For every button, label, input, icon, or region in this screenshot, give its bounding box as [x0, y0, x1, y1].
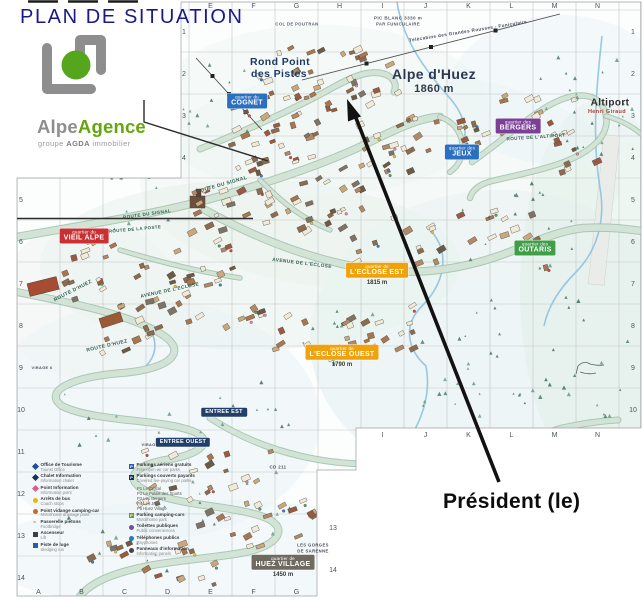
grid-letter-bottom: B [79, 589, 84, 596]
grid-number-right: 2 [631, 71, 635, 78]
parking-icon: P [129, 475, 134, 480]
legend-item: PParking camping-carsMotorhome park [129, 513, 215, 522]
district-label-vieil-alpe: quartier duVIEIL ALPE [60, 229, 109, 244]
grid-letter-top: J [424, 3, 428, 10]
label-altiport: Altiport [591, 98, 630, 109]
grid-number-left: 10 [17, 407, 25, 414]
grid-letter-top: H [337, 3, 342, 10]
circle-icon [33, 498, 38, 503]
grid-letter-bottom: D [165, 589, 170, 596]
grid-number-right: 9 [631, 365, 635, 372]
parking-icon: P [129, 464, 134, 469]
label-col-poutran: COL DE POUTRAN [275, 22, 318, 27]
grid-number-right: 4 [631, 155, 635, 162]
label-cd211: CD 211 [269, 465, 286, 470]
grid-letter-top: G [294, 3, 299, 10]
plan-de-situation-page: { "page": { "title": "PLAN DE SITUATION"… [0, 0, 644, 600]
diamond-icon [32, 485, 39, 492]
grid-number-left: 14 [17, 575, 25, 582]
legend-item: Arrêts de busCoach stops [33, 497, 119, 506]
grid-number-left: 8 [19, 323, 23, 330]
grid-number-left: 6 [19, 239, 23, 246]
legend-parking-list: P1 Le CristalP2 Le Palais des SportsP3 L… [137, 486, 215, 511]
grid-letter-bottom-right: I [382, 432, 384, 439]
legend-item: Panneaux d'informationInformation panels [129, 547, 215, 556]
grid-letter-top: N [595, 3, 600, 10]
label-virage-6: VIRAGE 6 [32, 366, 53, 370]
label-altiport-sub: Henri Giraud [588, 109, 626, 115]
agency-name-alpe: Alpe [37, 116, 78, 137]
label-gorges-1: LES GORGES [297, 543, 329, 548]
grid-number-inner: 14 [329, 567, 337, 574]
grid-number-right: 7 [631, 281, 635, 288]
grid-number-right: 10 [629, 407, 637, 414]
district-label-entree-ouest: ENTREE OUEST [156, 438, 210, 447]
legend-item: Point vidange camping-carMotorhome drain… [33, 509, 119, 518]
grid-letter-top: F [251, 3, 255, 10]
grid-letter-bottom: A [36, 589, 41, 596]
agency-tagline: groupe AGDA immobilier [38, 139, 183, 148]
grid-number-left: 9 [19, 365, 23, 372]
district-label-entree-est: ENTREE EST [201, 408, 247, 417]
grid-number-left: 13 [17, 533, 25, 540]
circle-icon [129, 548, 134, 553]
legend-item: PParkings couverts payantsCovered fee-pa… [129, 474, 215, 483]
grid-number-right: 8 [631, 323, 635, 330]
circle-icon [33, 509, 38, 514]
label-rond-point-1: Rond Point [250, 56, 310, 68]
agency-name: AlpeAgence [37, 116, 183, 138]
label-funiculaire: PAR FUNICULAIRE [376, 22, 420, 27]
agency-logo: AlpeAgence groupe AGDA immobilier [33, 28, 183, 148]
page-title: PLAN DE SITUATION [20, 6, 244, 29]
district-label-bergers: quartier desBERGERS [496, 119, 541, 134]
legend-item: Téléphones publicsPayphones [129, 536, 215, 545]
grid-number-right: 6 [631, 239, 635, 246]
grid-number-left: 7 [19, 281, 23, 288]
wave-icon: ≈ [33, 521, 38, 526]
district-label-jeux: quartier desJEUX [445, 145, 479, 160]
grid-number-right: 3 [631, 113, 635, 120]
grid-letter-bottom: E [208, 589, 213, 596]
map-stage: EFGHIJKLMNABCDEFGIJKLMN12345678910111213… [0, 0, 644, 600]
grid-number-right: 1 [631, 29, 635, 36]
grid-number-left: 4 [182, 155, 186, 162]
grid-number-left: 12 [17, 491, 25, 498]
legend-item: Chalet InformationInformation chalet [33, 474, 119, 483]
agency-logo-mark [39, 28, 111, 96]
grid-number-left: 11 [17, 449, 24, 456]
parking-icon: P [129, 513, 134, 518]
district-label-eclose-est: quartier deL'ECLOSE EST1815 m [346, 263, 408, 286]
district-label-outaris: quartier desOUTARIS [514, 241, 555, 256]
grid-letter-bottom: G [294, 589, 299, 596]
diamond-icon [32, 462, 39, 469]
label-gorges-2: DE SARENNE [297, 549, 328, 554]
label-pic-blanc: PIC BLANC 3330 m [374, 16, 422, 21]
map-legend: Office de TourismeTourist OfficeChalet I… [33, 463, 215, 559]
label-rond-point-2: des Pistes [251, 68, 307, 80]
grid-letter-bottom-right: N [595, 432, 600, 439]
grid-letter-bottom-right: K [466, 432, 471, 439]
grid-letter-top: L [510, 3, 514, 10]
agency-name-agence: Agence [78, 116, 146, 137]
grid-letter-bottom-right: J [424, 432, 428, 439]
logo-green-circle [62, 51, 91, 80]
legend-item: Office de TourismeTourist Office [33, 463, 119, 472]
grid-letter-bottom: C [122, 589, 127, 596]
legend-column-right: PParkings aériens gratuitsFree open-air … [129, 463, 215, 559]
grid-letter-top: M [552, 3, 558, 10]
grid-number-inner: 13 [329, 525, 337, 532]
district-altitude: 1450 m [252, 571, 315, 577]
legend-item: Piste de lugeSledging run [33, 543, 119, 552]
square-icon [33, 532, 38, 537]
legend-item: Point InformationInformation point [33, 486, 119, 495]
legend-item: ≈Passerelle piétonsFootbridge [33, 520, 119, 529]
grid-letter-top: K [466, 3, 471, 10]
legend-item: PParkings aériens gratuitsFree open-air … [129, 463, 215, 472]
district-altitude: 1790 m [306, 361, 379, 367]
district-label-cognet: quartier duCOGNET [227, 94, 267, 109]
diamond-icon [32, 474, 39, 481]
grid-letter-bottom-right: M [552, 432, 558, 439]
legend-item: AscenseurLift [33, 531, 119, 540]
legend-column-left: Office de TourismeTourist OfficeChalet I… [33, 463, 119, 559]
district-label-eclose-ouest: quartier deL'ECLOSE OUEST1790 m [306, 345, 379, 368]
grid-letter-bottom: F [251, 589, 255, 596]
circle-icon [129, 525, 134, 530]
label-resort-name: Alpe d'Huez [392, 66, 476, 82]
legend-item: Toilettes publiquesPublic conveniences [129, 524, 215, 533]
district-label-huez-village: quartier deHUEZ VILLAGE1450 m [252, 555, 315, 578]
grid-letter-bottom-right: L [510, 432, 514, 439]
grid-number-left: 5 [19, 197, 23, 204]
grid-number-right: 5 [631, 197, 635, 204]
label-resort-alt: 1860 m [414, 83, 454, 95]
grid-letter-top: I [382, 3, 384, 10]
president-annotation-label: Président (le) [443, 490, 580, 514]
district-altitude: 1815 m [346, 279, 408, 285]
square-icon [33, 543, 38, 548]
circle-icon [129, 536, 134, 541]
